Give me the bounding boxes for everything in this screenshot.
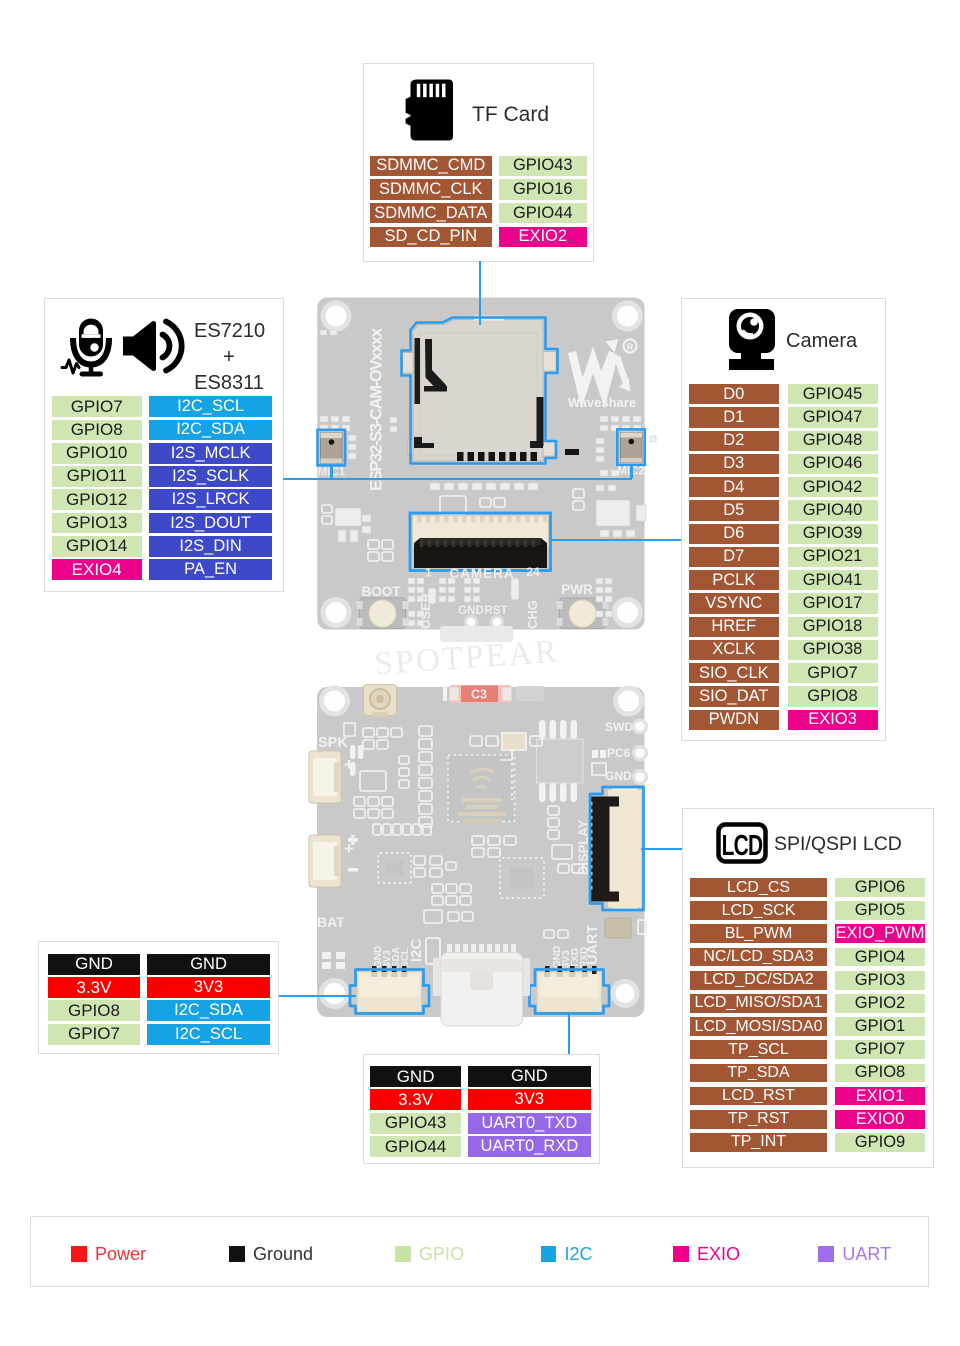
svg-text:RXD: RXD	[579, 947, 590, 968]
svg-text:CAMERA: CAMERA	[449, 566, 514, 581]
svg-text:Waveshare: Waveshare	[568, 395, 636, 410]
svg-text:DISPLAY: DISPLAY	[576, 820, 591, 875]
svg-text:ESP32-S3-CAM-OVxxxx: ESP32-S3-CAM-OVxxxx	[368, 327, 386, 491]
svg-text:SPOTPEAR: SPOTPEAR	[373, 634, 560, 683]
svg-text:C3: C3	[471, 688, 487, 702]
svg-text:BOOT: BOOT	[362, 584, 402, 599]
svg-text:SWD: SWD	[605, 720, 633, 734]
svg-text:PWR: PWR	[561, 582, 593, 597]
svg-text:R: R	[627, 342, 634, 353]
svg-text:CHG: CHG	[525, 600, 540, 629]
svg-text:PC6: PC6	[607, 746, 631, 760]
svg-text:1: 1	[425, 566, 432, 580]
svg-text:BAT: BAT	[317, 914, 345, 930]
svg-text:GND: GND	[605, 769, 632, 783]
svg-text:I2C: I2C	[408, 938, 425, 962]
svg-text:24: 24	[526, 565, 540, 579]
svg-text:SPK: SPK	[318, 735, 348, 751]
